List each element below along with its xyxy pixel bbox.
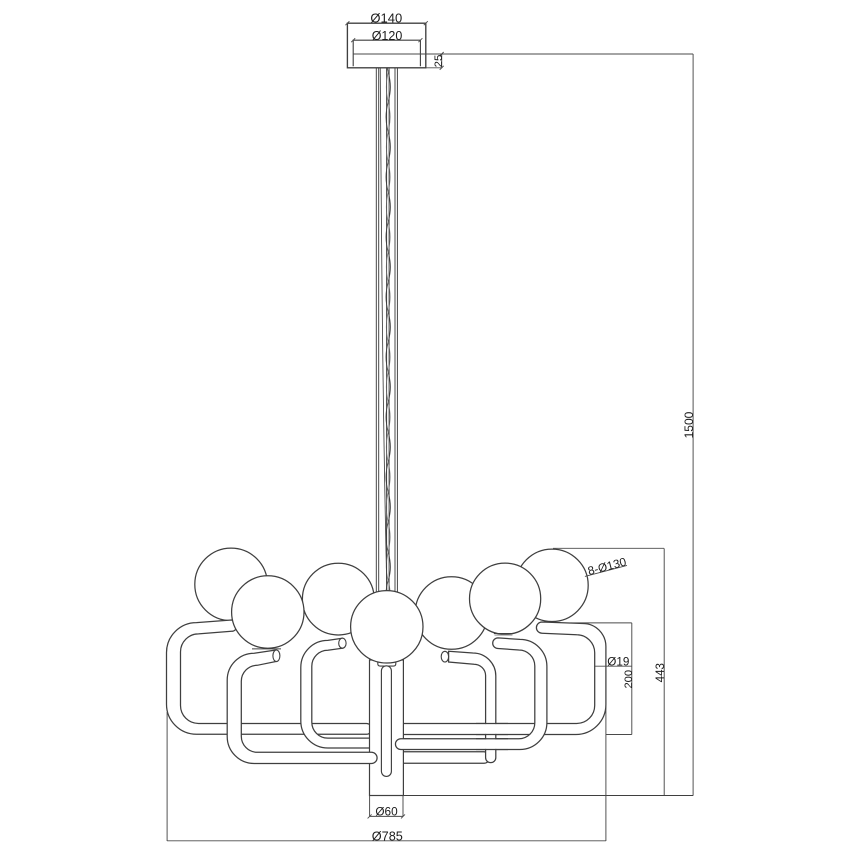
svg-text:200: 200: [623, 670, 635, 689]
svg-text:443: 443: [654, 663, 667, 682]
svg-text:Ø19: Ø19: [607, 656, 629, 669]
svg-text:Ø140: Ø140: [370, 10, 402, 25]
svg-text:Ø785: Ø785: [372, 830, 403, 844]
svg-text:1500: 1500: [682, 411, 696, 438]
svg-text:Ø120: Ø120: [372, 29, 403, 43]
svg-text:Ø60: Ø60: [375, 805, 398, 819]
svg-text:8-Ø130: 8-Ø130: [586, 554, 628, 578]
svg-text:25: 25: [433, 55, 445, 68]
